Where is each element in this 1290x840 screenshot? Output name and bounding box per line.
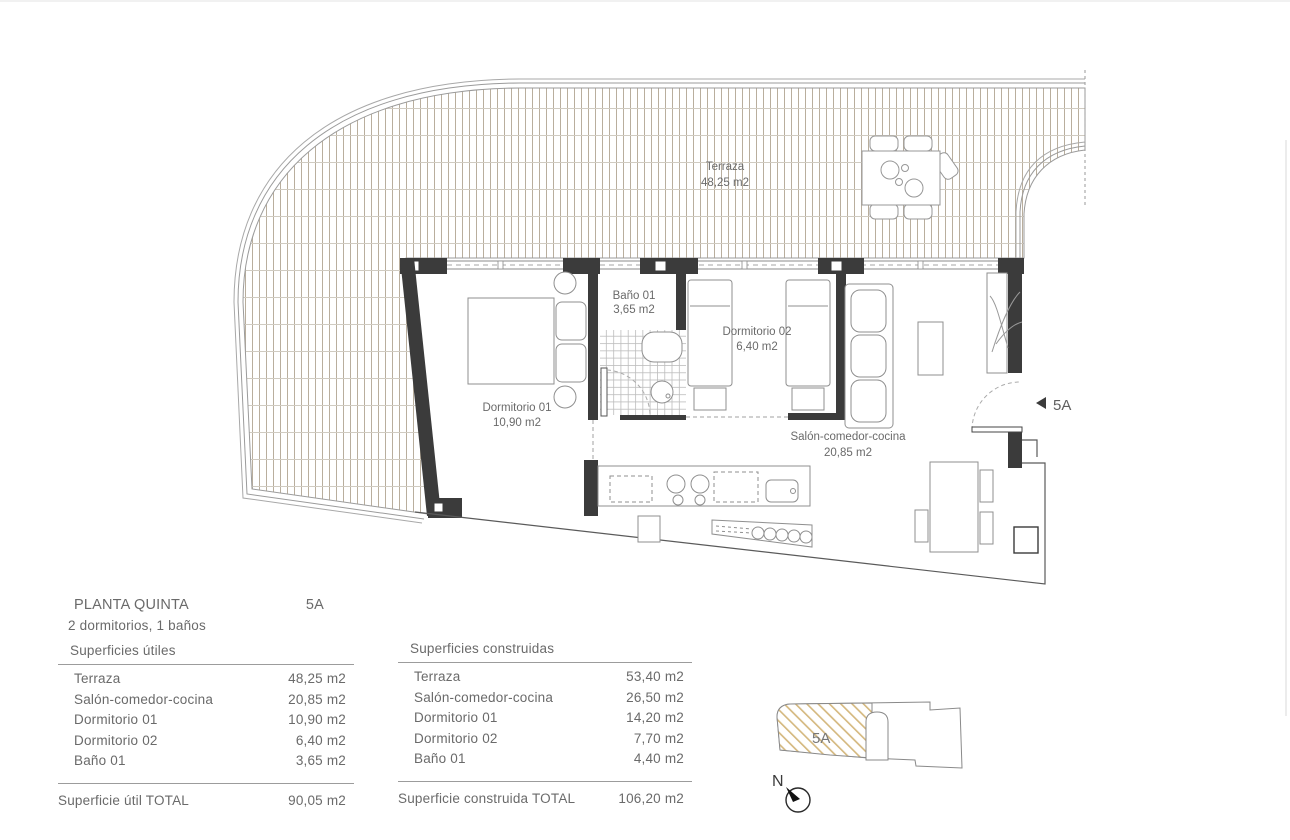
row-label: Dormitorio 01 (74, 710, 158, 731)
north-label: N (772, 773, 784, 790)
pillow (556, 344, 586, 382)
kitchen-tall-unit-wall (584, 460, 598, 516)
bano-label: Baño 01 (613, 290, 656, 302)
row-label: Dormitorio 02 (74, 731, 158, 752)
utiles-total-row: Superficie útil TOTAL 90,05 m2 (58, 784, 354, 808)
total-label: Superficie útil TOTAL (58, 793, 189, 808)
dining-chair (980, 470, 993, 502)
dormitorio1-area: 10,90 m2 (493, 417, 541, 429)
terrace-glass (896, 179, 903, 186)
entrance-arrow-icon (1036, 397, 1046, 409)
double-bed (468, 298, 554, 384)
row-value: 10,90 m2 (288, 710, 346, 731)
terrace-chair (870, 204, 898, 219)
terrace-chair (904, 204, 932, 219)
terraza-area: 48,25 m2 (701, 177, 749, 189)
table-row: Baño 01 3,65 m2 (58, 751, 354, 772)
terrace-glass (902, 165, 909, 172)
stool-block (638, 516, 660, 542)
row-value: 48,25 m2 (288, 669, 346, 690)
opening-dashes (593, 417, 788, 460)
row-label: Terraza (414, 667, 460, 688)
single-bed (786, 280, 830, 386)
table-row: Salón-comedor-cocina 26,50 m2 (398, 688, 692, 709)
entrance-unit-label: 5A (1053, 397, 1071, 414)
row-label: Salón-comedor-cocina (414, 688, 553, 709)
dining-chair (915, 510, 928, 542)
terraza-label: Terraza (706, 161, 745, 173)
terrace-decking (243, 88, 1085, 514)
total-label: Superficie construida TOTAL (398, 791, 575, 806)
row-label: Terraza (74, 669, 120, 690)
table-row: Terraza 53,40 m2 (398, 667, 692, 688)
bano-area: 3,65 m2 (613, 304, 655, 316)
entrance-marker: 5A (1036, 397, 1071, 414)
table-row: Baño 01 4,40 m2 (398, 749, 692, 770)
row-label: Salón-comedor-cocina (74, 690, 213, 711)
utiles-rows: Terraza 48,25 m2 Salón-comedor-cocina 20… (58, 665, 354, 772)
table-row: Dormitorio 02 6,40 m2 (58, 731, 354, 752)
construidas-title: Superficies construidas (398, 641, 692, 656)
location-key: 5A (777, 702, 962, 768)
window-mullion (918, 261, 923, 269)
window-mullion (742, 261, 747, 269)
row-value: 26,50 m2 (626, 688, 684, 709)
bedside-table (554, 386, 576, 408)
window-mullion (498, 261, 503, 269)
row-label: Dormitorio 02 (414, 729, 498, 750)
dormitorio2-label: Dormitorio 02 (722, 326, 791, 338)
north-arrow: N (772, 773, 810, 812)
wall-piers (400, 258, 1024, 274)
dining-table (930, 462, 978, 552)
row-value: 6,40 m2 (296, 731, 346, 752)
table-row: Terraza 48,25 m2 (58, 669, 354, 690)
row-value: 20,85 m2 (288, 690, 346, 711)
terrace-plate (905, 179, 923, 197)
sofa-cushion (851, 335, 886, 377)
dining-chair (980, 512, 993, 544)
salon-label: Salón-comedor-cocina (790, 431, 906, 443)
dormitorio-01 (468, 272, 586, 408)
construidas-rows: Terraza 53,40 m2 Salón-comedor-cocina 26… (398, 663, 692, 770)
dormitorio2-area: 6,40 m2 (736, 341, 778, 353)
row-value: 53,40 m2 (626, 667, 684, 688)
row-value: 14,20 m2 (626, 708, 684, 729)
window-band (402, 261, 1022, 269)
right-wall-lower (1008, 430, 1022, 468)
entrance-door (972, 382, 1022, 432)
tap (791, 489, 796, 494)
utiles-title: Superficies útiles (58, 643, 354, 658)
bed-foot-box (694, 388, 726, 410)
bano-01 (600, 330, 686, 416)
row-value: 4,40 m2 (634, 749, 684, 770)
kitchen (598, 466, 812, 547)
bath-door-leaf (601, 368, 607, 416)
terrace (234, 70, 1085, 523)
bathtub (642, 332, 682, 362)
wall-dorm1-bath (588, 272, 598, 420)
salon-area: 20,85 m2 (824, 447, 872, 459)
row-label: Baño 01 (74, 751, 126, 772)
table-row: Salón-comedor-cocina 20,85 m2 (58, 690, 354, 711)
sofa-cushion (851, 380, 886, 422)
floor-unit: 5A (306, 597, 324, 613)
bedside-table (554, 272, 576, 294)
stair-core (866, 712, 888, 760)
washbasin (651, 381, 673, 403)
salon-comedor-cocina (845, 273, 1022, 552)
row-value: 3,65 m2 (296, 751, 346, 772)
superficies-utiles-table: PLANTA QUINTA 5A 2 dormitorios, 1 baños … (58, 597, 354, 808)
row-value: 7,70 m2 (634, 729, 684, 750)
row-label: Dormitorio 01 (414, 708, 498, 729)
sideboard (987, 273, 1007, 373)
construidas-total-row: Superficie construida TOTAL 106,20 m2 (398, 782, 692, 806)
terrace-plate (881, 161, 899, 179)
bed-foot-box (792, 388, 824, 410)
key-unit-label: 5A (812, 730, 830, 747)
dormitorio1-label: Dormitorio 01 (482, 402, 551, 414)
total-value: 90,05 m2 (288, 793, 346, 808)
column (1014, 527, 1038, 553)
terrace-chair (904, 136, 932, 151)
table-row: Dormitorio 02 7,70 m2 (398, 729, 692, 750)
superficies-construidas-table: Superficies construidas Terraza 53,40 m2… (398, 641, 692, 806)
floor-title: PLANTA QUINTA (74, 597, 189, 613)
pillow (556, 302, 586, 340)
sofa-cushion (851, 290, 886, 332)
coffee-table (918, 322, 943, 375)
table-row: Dormitorio 01 10,90 m2 (58, 710, 354, 731)
total-value: 106,20 m2 (618, 791, 684, 806)
dishwasher (610, 476, 652, 502)
dorm2-bottom-wall (788, 413, 846, 420)
terrace-table (862, 151, 940, 205)
row-label: Baño 01 (414, 749, 466, 770)
table-row: Dormitorio 01 14,20 m2 (398, 708, 692, 729)
floor-subtitle: 2 dormitorios, 1 baños (58, 618, 354, 633)
oven (714, 472, 758, 502)
terrace-chair (870, 136, 898, 151)
